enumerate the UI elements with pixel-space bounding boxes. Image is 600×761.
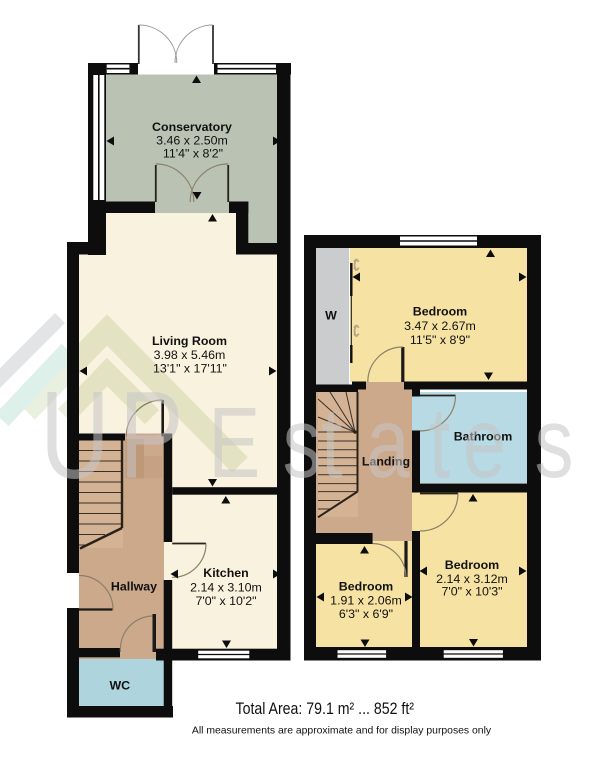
svg-text:6'3" x 6'9": 6'3" x 6'9" xyxy=(339,607,393,621)
svg-text:s: s xyxy=(534,388,573,500)
svg-text:2.14 x 3.10m: 2.14 x 3.10m xyxy=(190,580,262,594)
svg-text:11'4" x 8'2": 11'4" x 8'2" xyxy=(163,147,223,161)
svg-text:E: E xyxy=(208,388,260,500)
svg-text:3.46 x 2.50m: 3.46 x 2.50m xyxy=(156,133,228,147)
svg-text:All measurements are approxima: All measurements are approximate and for… xyxy=(192,726,492,737)
svg-text:t: t xyxy=(429,388,451,500)
svg-text:11'5" x 8'9": 11'5" x 8'9" xyxy=(410,333,470,347)
svg-text:WC: WC xyxy=(109,679,130,693)
svg-text:a: a xyxy=(366,388,409,500)
svg-text:s: s xyxy=(283,388,322,500)
svg-text:1.91 x 2.06m: 1.91 x 2.06m xyxy=(330,594,402,608)
svg-text:3.47 x 2.67m: 3.47 x 2.67m xyxy=(404,319,476,333)
svg-text:t: t xyxy=(321,388,343,500)
svg-text:Kitchen: Kitchen xyxy=(203,566,248,580)
svg-text:Bedroom: Bedroom xyxy=(445,558,499,572)
svg-text:P: P xyxy=(119,365,184,504)
svg-text:U: U xyxy=(40,365,110,504)
svg-text:Conservatory: Conservatory xyxy=(152,120,232,134)
svg-text:Hallway: Hallway xyxy=(111,580,157,594)
svg-text:3.98 x 5.46m: 3.98 x 5.46m xyxy=(154,348,226,362)
svg-text:e: e xyxy=(463,388,506,500)
svg-text:7'0" x 10'3": 7'0" x 10'3" xyxy=(441,585,502,599)
svg-text:7'0" x 10'2": 7'0" x 10'2" xyxy=(195,594,256,608)
svg-text:Bedroom: Bedroom xyxy=(413,305,467,319)
svg-text:Living Room: Living Room xyxy=(152,334,227,348)
svg-text:Total Area: 79.1 m² ... 852 ft: Total Area: 79.1 m² ... 852 ft² xyxy=(236,699,415,718)
svg-text:W: W xyxy=(325,309,337,323)
svg-text:Bedroom: Bedroom xyxy=(339,580,393,594)
